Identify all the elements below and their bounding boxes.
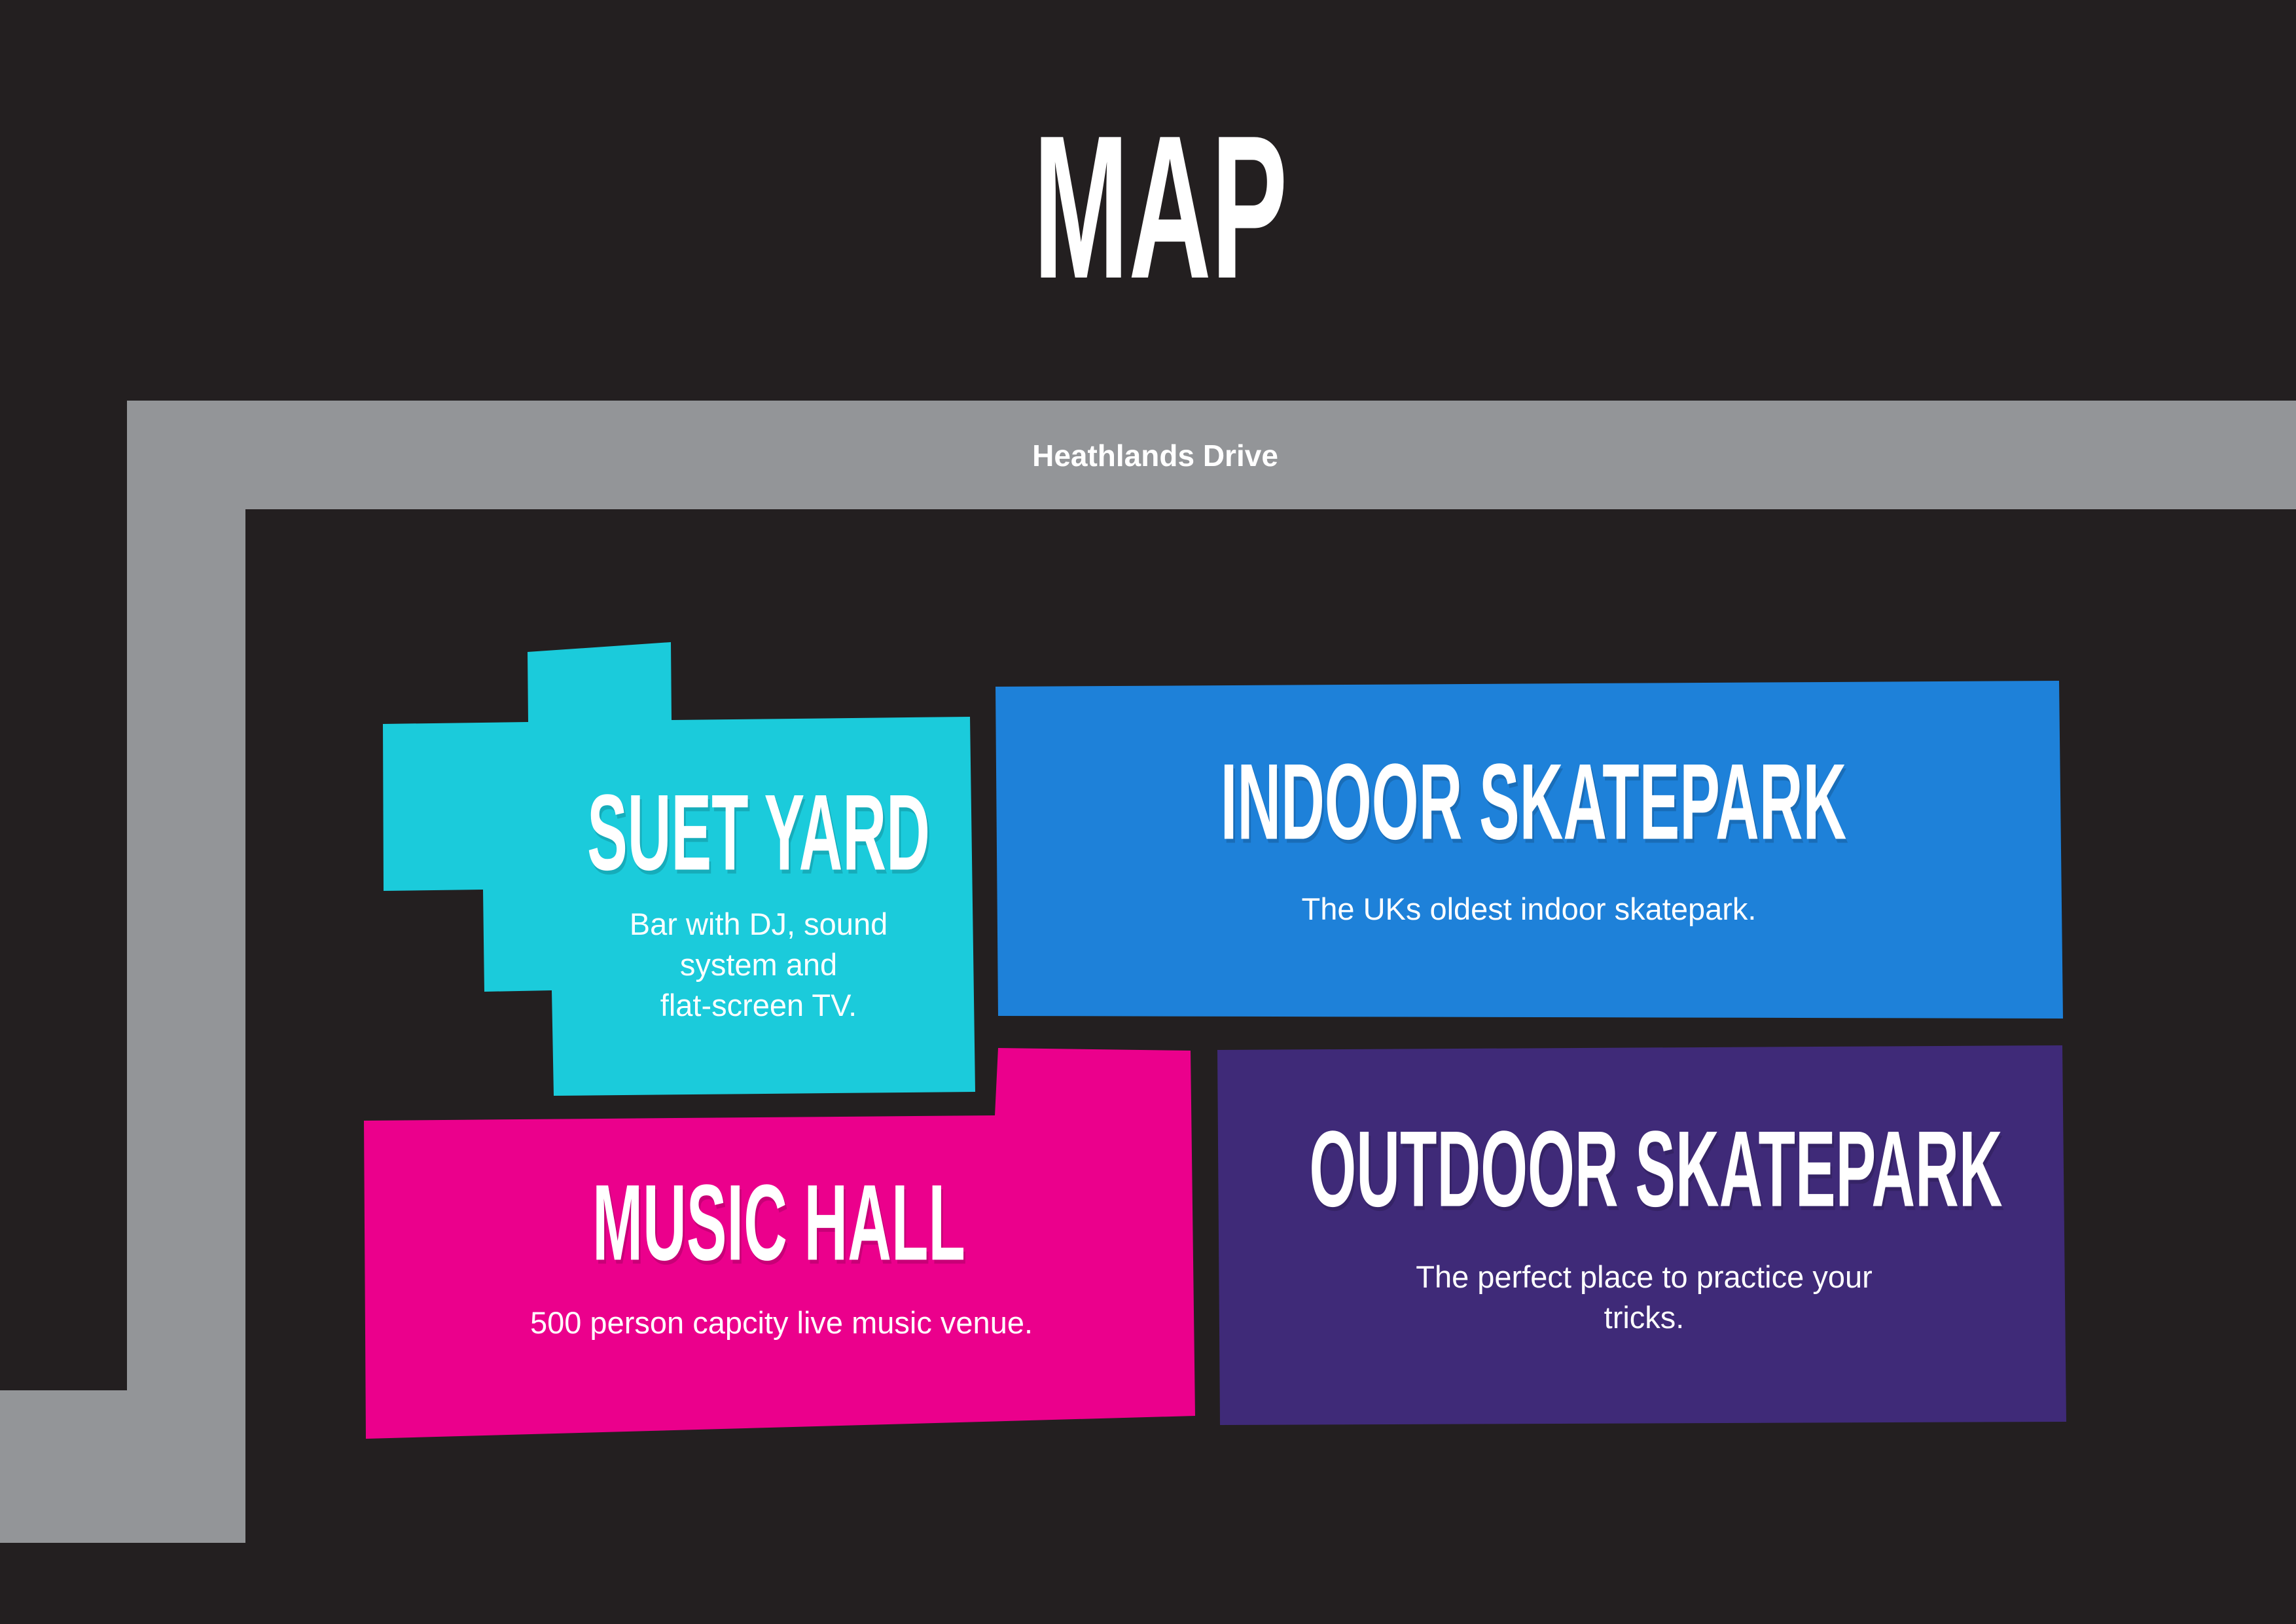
indoor-skatepark-title: INDOOR SKATEPARK	[1221, 748, 1847, 856]
outdoor-skatepark-description: The perfect place to practice your trick…	[1416, 1257, 1873, 1338]
suet-yard-title: SUET YARD	[587, 779, 930, 887]
outdoor-skatepark-description-line: The perfect place to practice your	[1416, 1257, 1873, 1297]
indoor-skatepark-description-line: The UKs oldest indoor skatepark.	[1302, 889, 1757, 929]
indoor-skatepark-description: The UKs oldest indoor skatepark.	[1302, 889, 1757, 929]
suet-yard-description-line: Bar with DJ, sound	[630, 904, 888, 945]
music-hall-description: 500 person capcity live music venue.	[530, 1303, 1033, 1343]
road-name-label: Heathlands Drive	[1032, 438, 1278, 473]
suet-yard-description-line: flat-screen TV.	[630, 985, 888, 1026]
suet-yard-description-line: system and	[630, 945, 888, 985]
road-vertical-segment	[127, 401, 245, 1543]
music-hall-description-line: 500 person capcity live music venue.	[530, 1303, 1033, 1343]
suet-yard-description: Bar with DJ, sound system and flat-scree…	[630, 904, 888, 1026]
music-hall-title: MUSIC HALL	[592, 1169, 965, 1277]
outdoor-skatepark-description-line: tricks.	[1416, 1297, 1873, 1338]
venue-map: MAP Heathlands Drive SUET YARD Bar with …	[0, 0, 2296, 1624]
outdoor-skatepark-title: OUTDOOR SKATEPARK	[1309, 1115, 2002, 1223]
road-elbow-segment	[0, 1390, 128, 1543]
